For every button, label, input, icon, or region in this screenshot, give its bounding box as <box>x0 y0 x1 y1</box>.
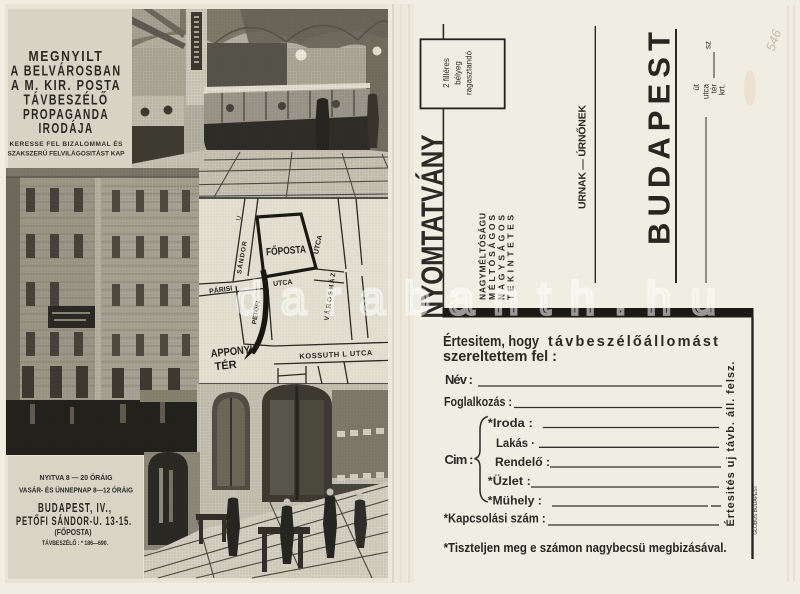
svg-text:darabanth.hu: darabanth.hu <box>236 272 735 324</box>
svg-text:BUDAPEST, IV.,: BUDAPEST, IV., <box>38 501 112 515</box>
svg-text:*Mühely :: *Mühely : <box>488 494 542 508</box>
svg-text:(FŐPOSTA): (FŐPOSTA) <box>55 528 92 537</box>
svg-text:NYITVA 8 — 20 ÓRÁIG: NYITVA 8 — 20 ÓRÁIG <box>40 473 113 482</box>
svg-text:Cim :: Cim : <box>445 452 474 467</box>
svg-text:KERESSE FEL BIZALOMMAL ÉS: KERESSE FEL BIZALOMMAL ÉS <box>10 139 124 148</box>
svg-text:TÁVBESZÉLŐ : * 186—690.: TÁVBESZÉLŐ : * 186—690. <box>42 539 108 547</box>
svg-text:*Üzlet :: *Üzlet : <box>488 473 531 488</box>
svg-text:PETŐFI SÁNDOR-U. 13-15.: PETŐFI SÁNDOR-U. 13-15. <box>16 515 132 528</box>
svg-text:szereltettem fel :: szereltettem fel : <box>443 349 557 365</box>
svg-text:út: út <box>692 83 701 90</box>
svg-text:Értesitem, hogy: Értesitem, hogy <box>443 333 539 350</box>
svg-text:Foglalkozás :: Foglalkozás : <box>444 394 512 409</box>
svg-text:VASÁR- ÉS ÜNNEPNAP 8—12 ÓRÁIG: VASÁR- ÉS ÜNNEPNAP 8—12 ÓRÁIG <box>19 486 134 495</box>
svg-text:sz: sz <box>704 41 713 49</box>
svg-text:Rendelő :: Rendelő : <box>495 455 550 469</box>
svg-text:BUDAPEST: BUDAPEST <box>642 32 677 245</box>
svg-text:ragasztandó: ragasztandó <box>465 50 474 95</box>
svg-text:Név :: Név : <box>445 372 473 387</box>
svg-text:krt.: krt. <box>718 84 727 95</box>
svg-text:2 filléres: 2 filléres <box>442 58 451 88</box>
svg-text:*Tiszteljen meg e számon nagyb: *Tiszteljen meg e számon nagybecsü megbi… <box>444 540 727 555</box>
svg-text:URNAK — ÚRNŐNEK: URNAK — ÚRNŐNEK <box>576 105 589 209</box>
svg-text:*Iroda :: *Iroda : <box>488 416 533 430</box>
svg-text:*Kapcsolási szám :: *Kapcsolási szám : <box>444 511 546 526</box>
svg-text:Lakás ·: Lakás · <box>496 436 535 450</box>
svg-text:Értesités uj távb. áll. felsz.: Értesités uj távb. áll. felsz. <box>724 362 737 527</box>
svg-text:SZAKSZERŰ FELVILÁGOSITÁST KAP: SZAKSZERŰ FELVILÁGOSITÁST KAP <box>8 149 126 158</box>
svg-text:IRODÁJA: IRODÁJA <box>39 120 94 137</box>
svg-text:bélyeg: bélyeg <box>454 61 463 85</box>
svg-text:GLOBUS BUDAPEST: GLOBUS BUDAPEST <box>753 485 759 534</box>
